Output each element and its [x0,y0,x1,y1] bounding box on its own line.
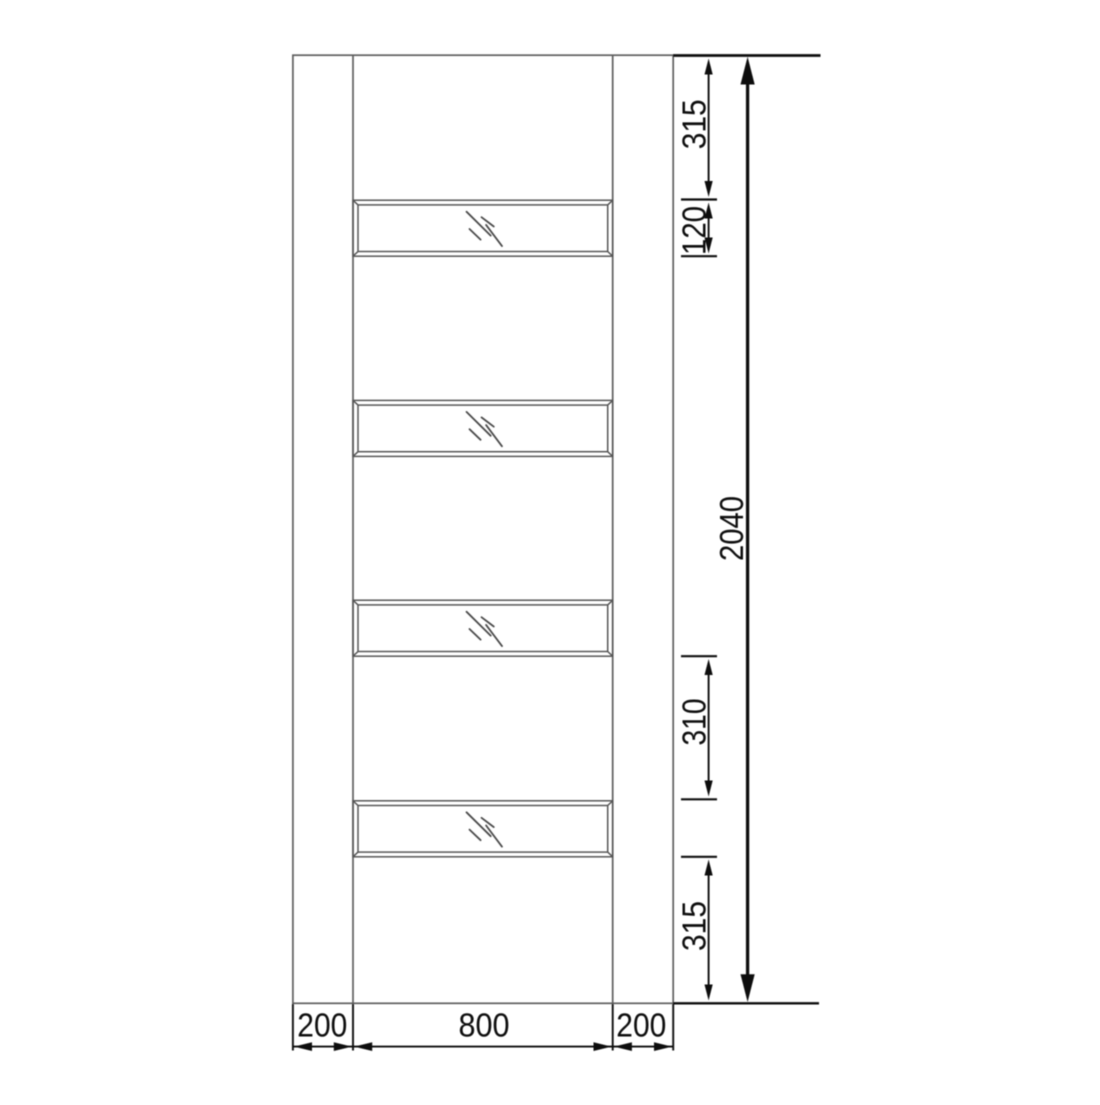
svg-text:310: 310 [675,699,712,746]
svg-text:120: 120 [675,206,712,255]
svg-text:200: 200 [616,1006,666,1043]
svg-text:2040: 2040 [713,496,750,561]
svg-text:315: 315 [675,99,712,149]
svg-text:200: 200 [297,1006,347,1043]
svg-text:315: 315 [675,901,712,951]
svg-text:800: 800 [459,1006,510,1043]
